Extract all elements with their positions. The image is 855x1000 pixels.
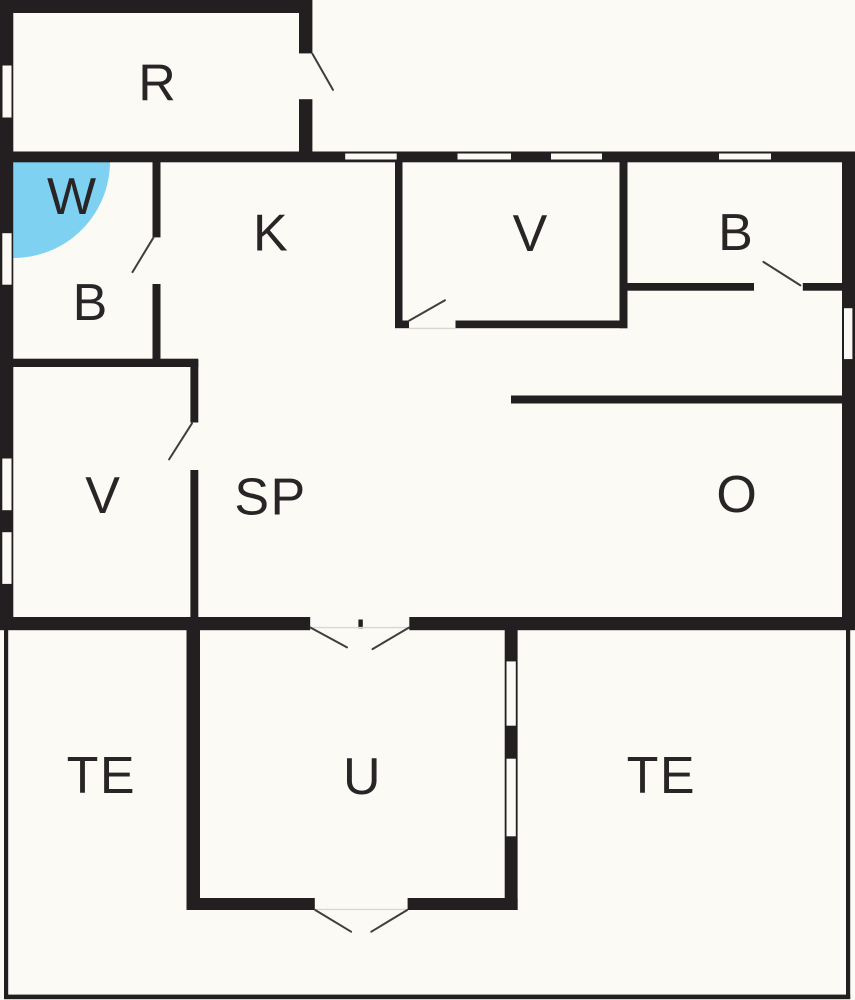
svg-text:R: R — [138, 55, 176, 113]
svg-text:B: B — [718, 204, 753, 262]
svg-text:SP: SP — [234, 469, 306, 527]
svg-text:TE: TE — [67, 747, 136, 805]
svg-text:O: O — [716, 466, 756, 524]
svg-text:B: B — [73, 274, 108, 332]
svg-text:W: W — [47, 168, 96, 226]
svg-text:K: K — [253, 205, 288, 263]
svg-text:U: U — [343, 748, 381, 806]
svg-text:V: V — [85, 467, 120, 525]
svg-text:V: V — [513, 205, 548, 263]
svg-text:TE: TE — [627, 747, 696, 805]
